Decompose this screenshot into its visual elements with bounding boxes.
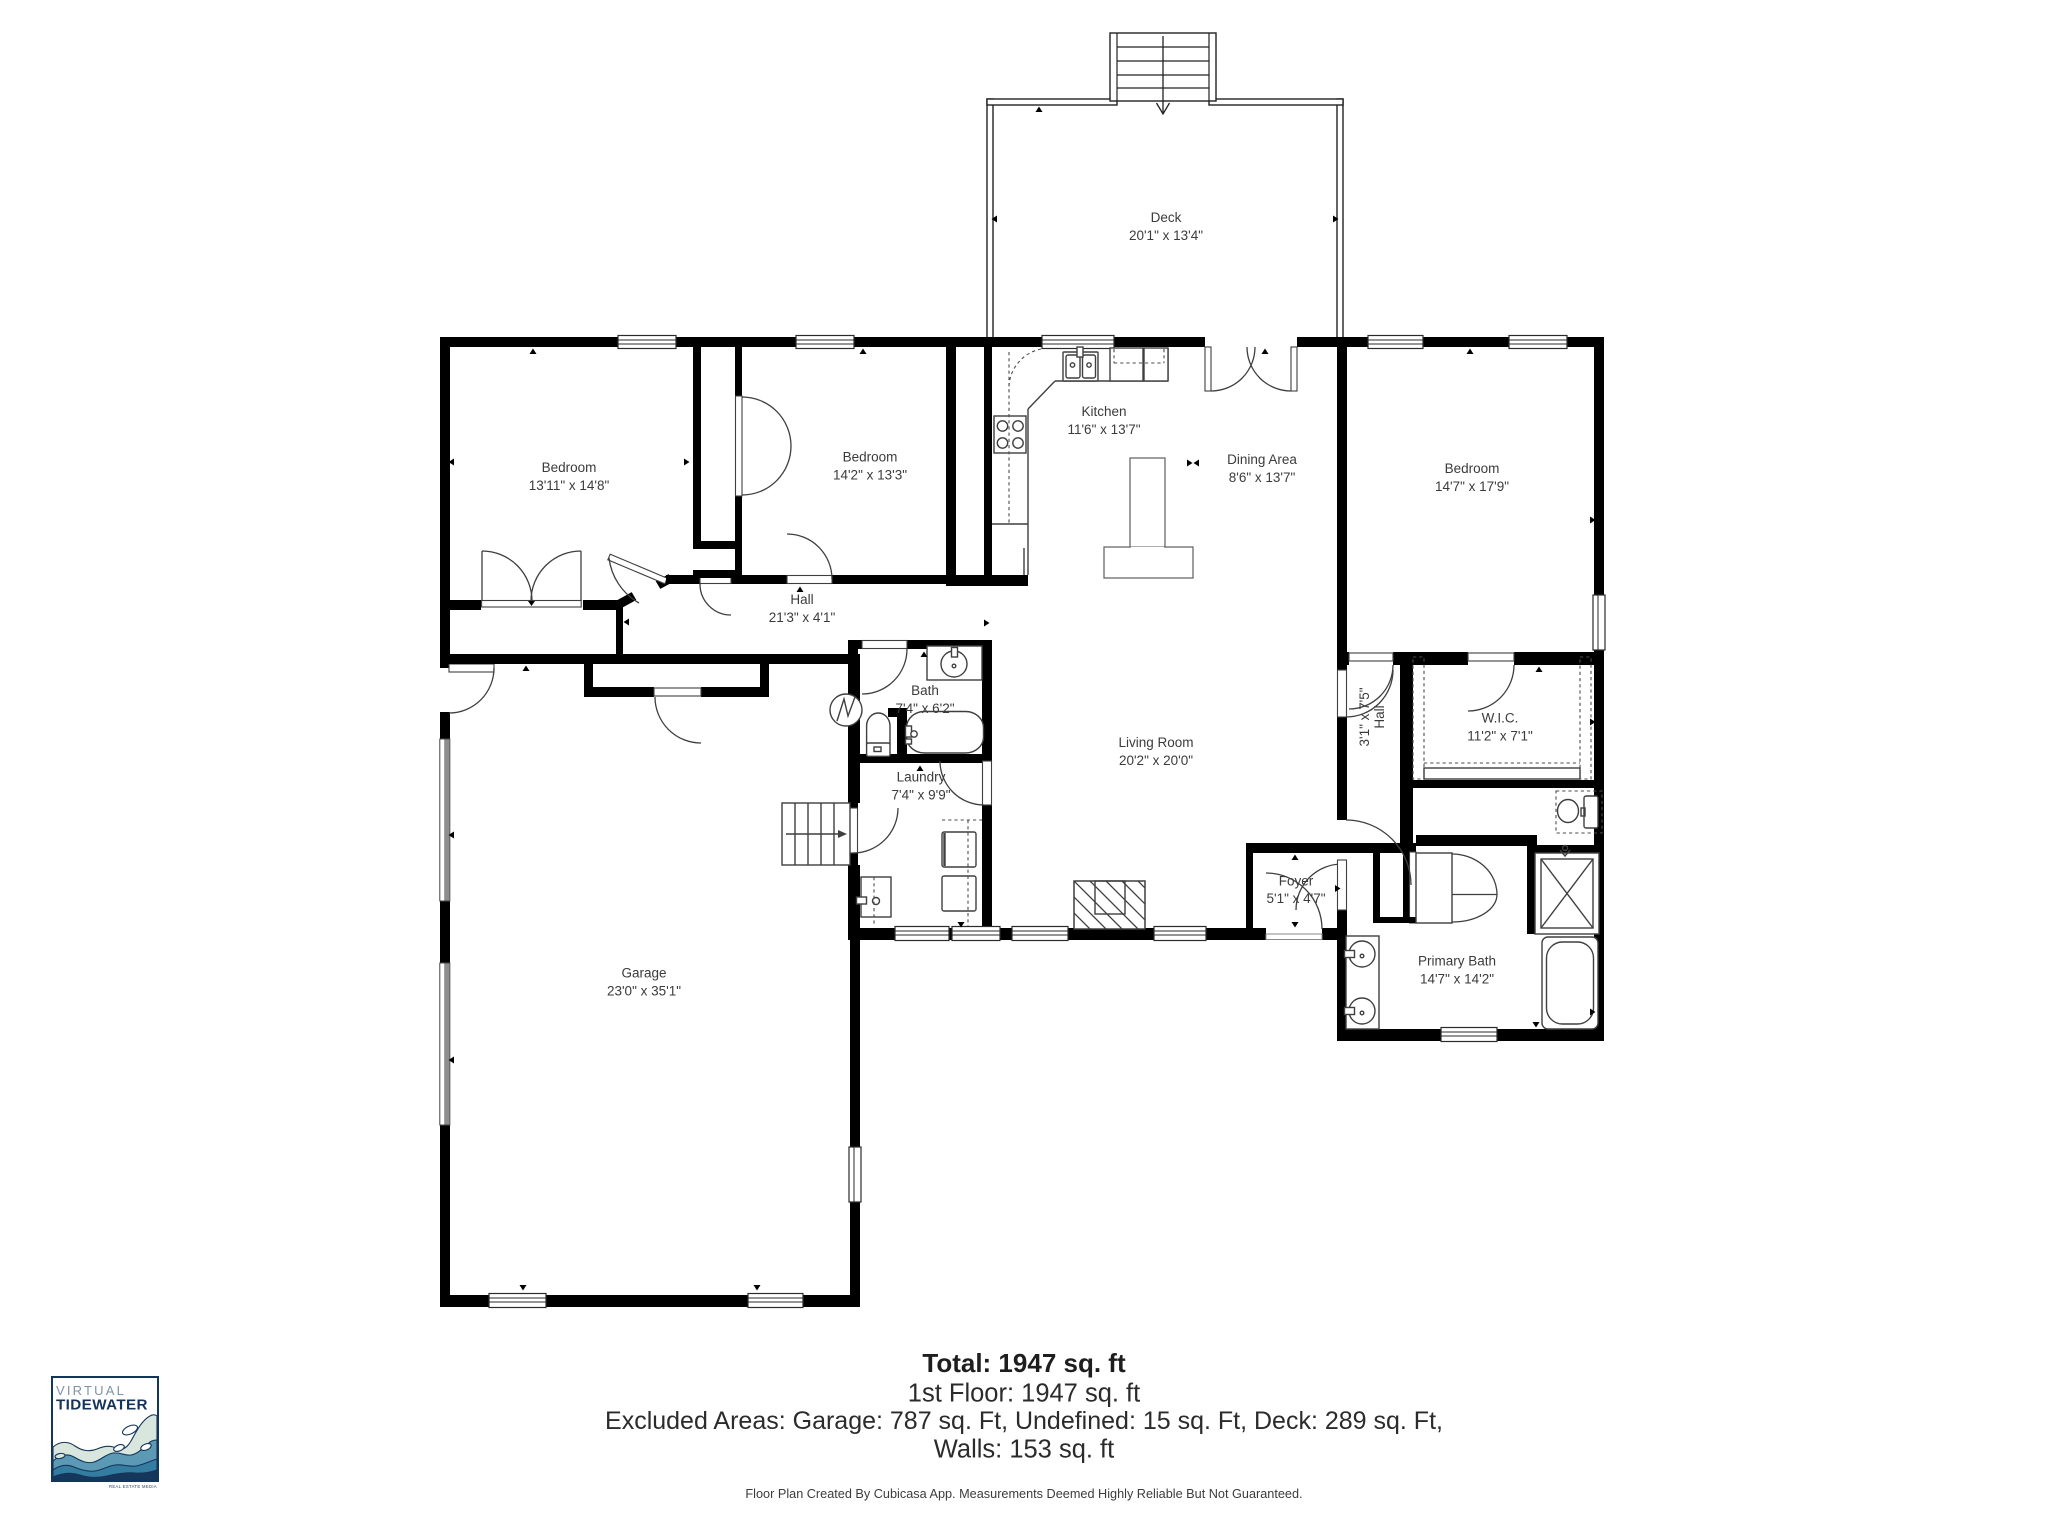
svg-text:20'1" x 13'4": 20'1" x 13'4": [1129, 228, 1203, 243]
svg-text:Excluded Areas: Garage: 787 sq: Excluded Areas: Garage: 787 sq. Ft, Unde…: [605, 1407, 1443, 1435]
svg-text:Dining Area: Dining Area: [1227, 452, 1297, 467]
svg-text:Foyer: Foyer: [1279, 874, 1314, 889]
svg-text:TIDEWATER: TIDEWATER: [56, 1397, 148, 1414]
svg-text:W.I.C.: W.I.C.: [1482, 711, 1519, 726]
svg-text:Bedroom: Bedroom: [542, 460, 597, 475]
svg-text:Garage: Garage: [621, 966, 666, 981]
svg-text:1st Floor: 1947 sq. ft: 1st Floor: 1947 sq. ft: [908, 1380, 1140, 1408]
svg-text:3'1" x 7'5": 3'1" x 7'5": [1357, 687, 1372, 746]
svg-text:11'2" x 7'1": 11'2" x 7'1": [1467, 729, 1533, 744]
svg-text:Hall: Hall: [790, 592, 813, 607]
svg-text:Floor Plan Created By Cubicasa: Floor Plan Created By Cubicasa App. Meas…: [745, 1487, 1302, 1501]
svg-text:14'2" x 13'3": 14'2" x 13'3": [833, 468, 907, 483]
svg-text:Living Room: Living Room: [1118, 735, 1193, 750]
svg-text:14'7" x 17'9": 14'7" x 17'9": [1435, 479, 1509, 494]
svg-text:8'6" x 13'7": 8'6" x 13'7": [1229, 470, 1296, 485]
svg-text:5'1" x 4'7": 5'1" x 4'7": [1266, 891, 1325, 906]
svg-text:Bath: Bath: [911, 683, 939, 698]
svg-text:13'11" x 14'8": 13'11" x 14'8": [529, 478, 610, 493]
svg-text:Laundry: Laundry: [897, 770, 946, 785]
svg-text:21'3" x 4'1": 21'3" x 4'1": [769, 610, 836, 625]
svg-text:Bedroom: Bedroom: [843, 450, 898, 465]
svg-text:7'4" x 6'2": 7'4" x 6'2": [895, 701, 954, 716]
svg-text:Deck: Deck: [1151, 210, 1182, 225]
svg-text:14'7" x 14'2": 14'7" x 14'2": [1420, 972, 1494, 987]
svg-text:Primary Bath: Primary Bath: [1418, 954, 1496, 969]
svg-text:REAL ESTATE MEDIA: REAL ESTATE MEDIA: [109, 1484, 157, 1489]
svg-text:Walls: 153 sq. ft: Walls: 153 sq. ft: [934, 1436, 1114, 1464]
svg-text:Kitchen: Kitchen: [1081, 404, 1126, 419]
svg-text:23'0" x 35'1": 23'0" x 35'1": [607, 984, 681, 999]
svg-text:Hall: Hall: [1372, 705, 1387, 728]
svg-text:20'2" x 20'0": 20'2" x 20'0": [1119, 753, 1193, 768]
svg-text:Total: 1947 sq. ft: Total: 1947 sq. ft: [922, 1348, 1126, 1378]
svg-text:Bedroom: Bedroom: [1445, 461, 1500, 476]
svg-text:7'4" x 9'9": 7'4" x 9'9": [891, 788, 950, 803]
svg-text:11'6" x 13'7": 11'6" x 13'7": [1067, 422, 1140, 437]
